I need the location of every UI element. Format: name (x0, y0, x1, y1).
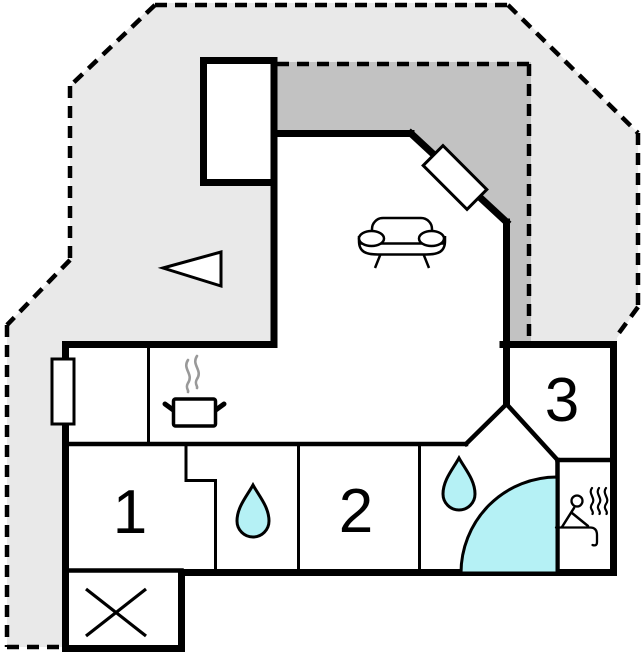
bedroom-2-label: 2 (339, 477, 373, 546)
room-3-label: 3 (545, 366, 579, 435)
window-icon (52, 359, 74, 424)
bedroom-1-label: 1 (113, 478, 147, 547)
floor-plan: 1 2 3 (0, 0, 643, 652)
floor-plan-canvas: 1 2 3 (0, 0, 643, 652)
